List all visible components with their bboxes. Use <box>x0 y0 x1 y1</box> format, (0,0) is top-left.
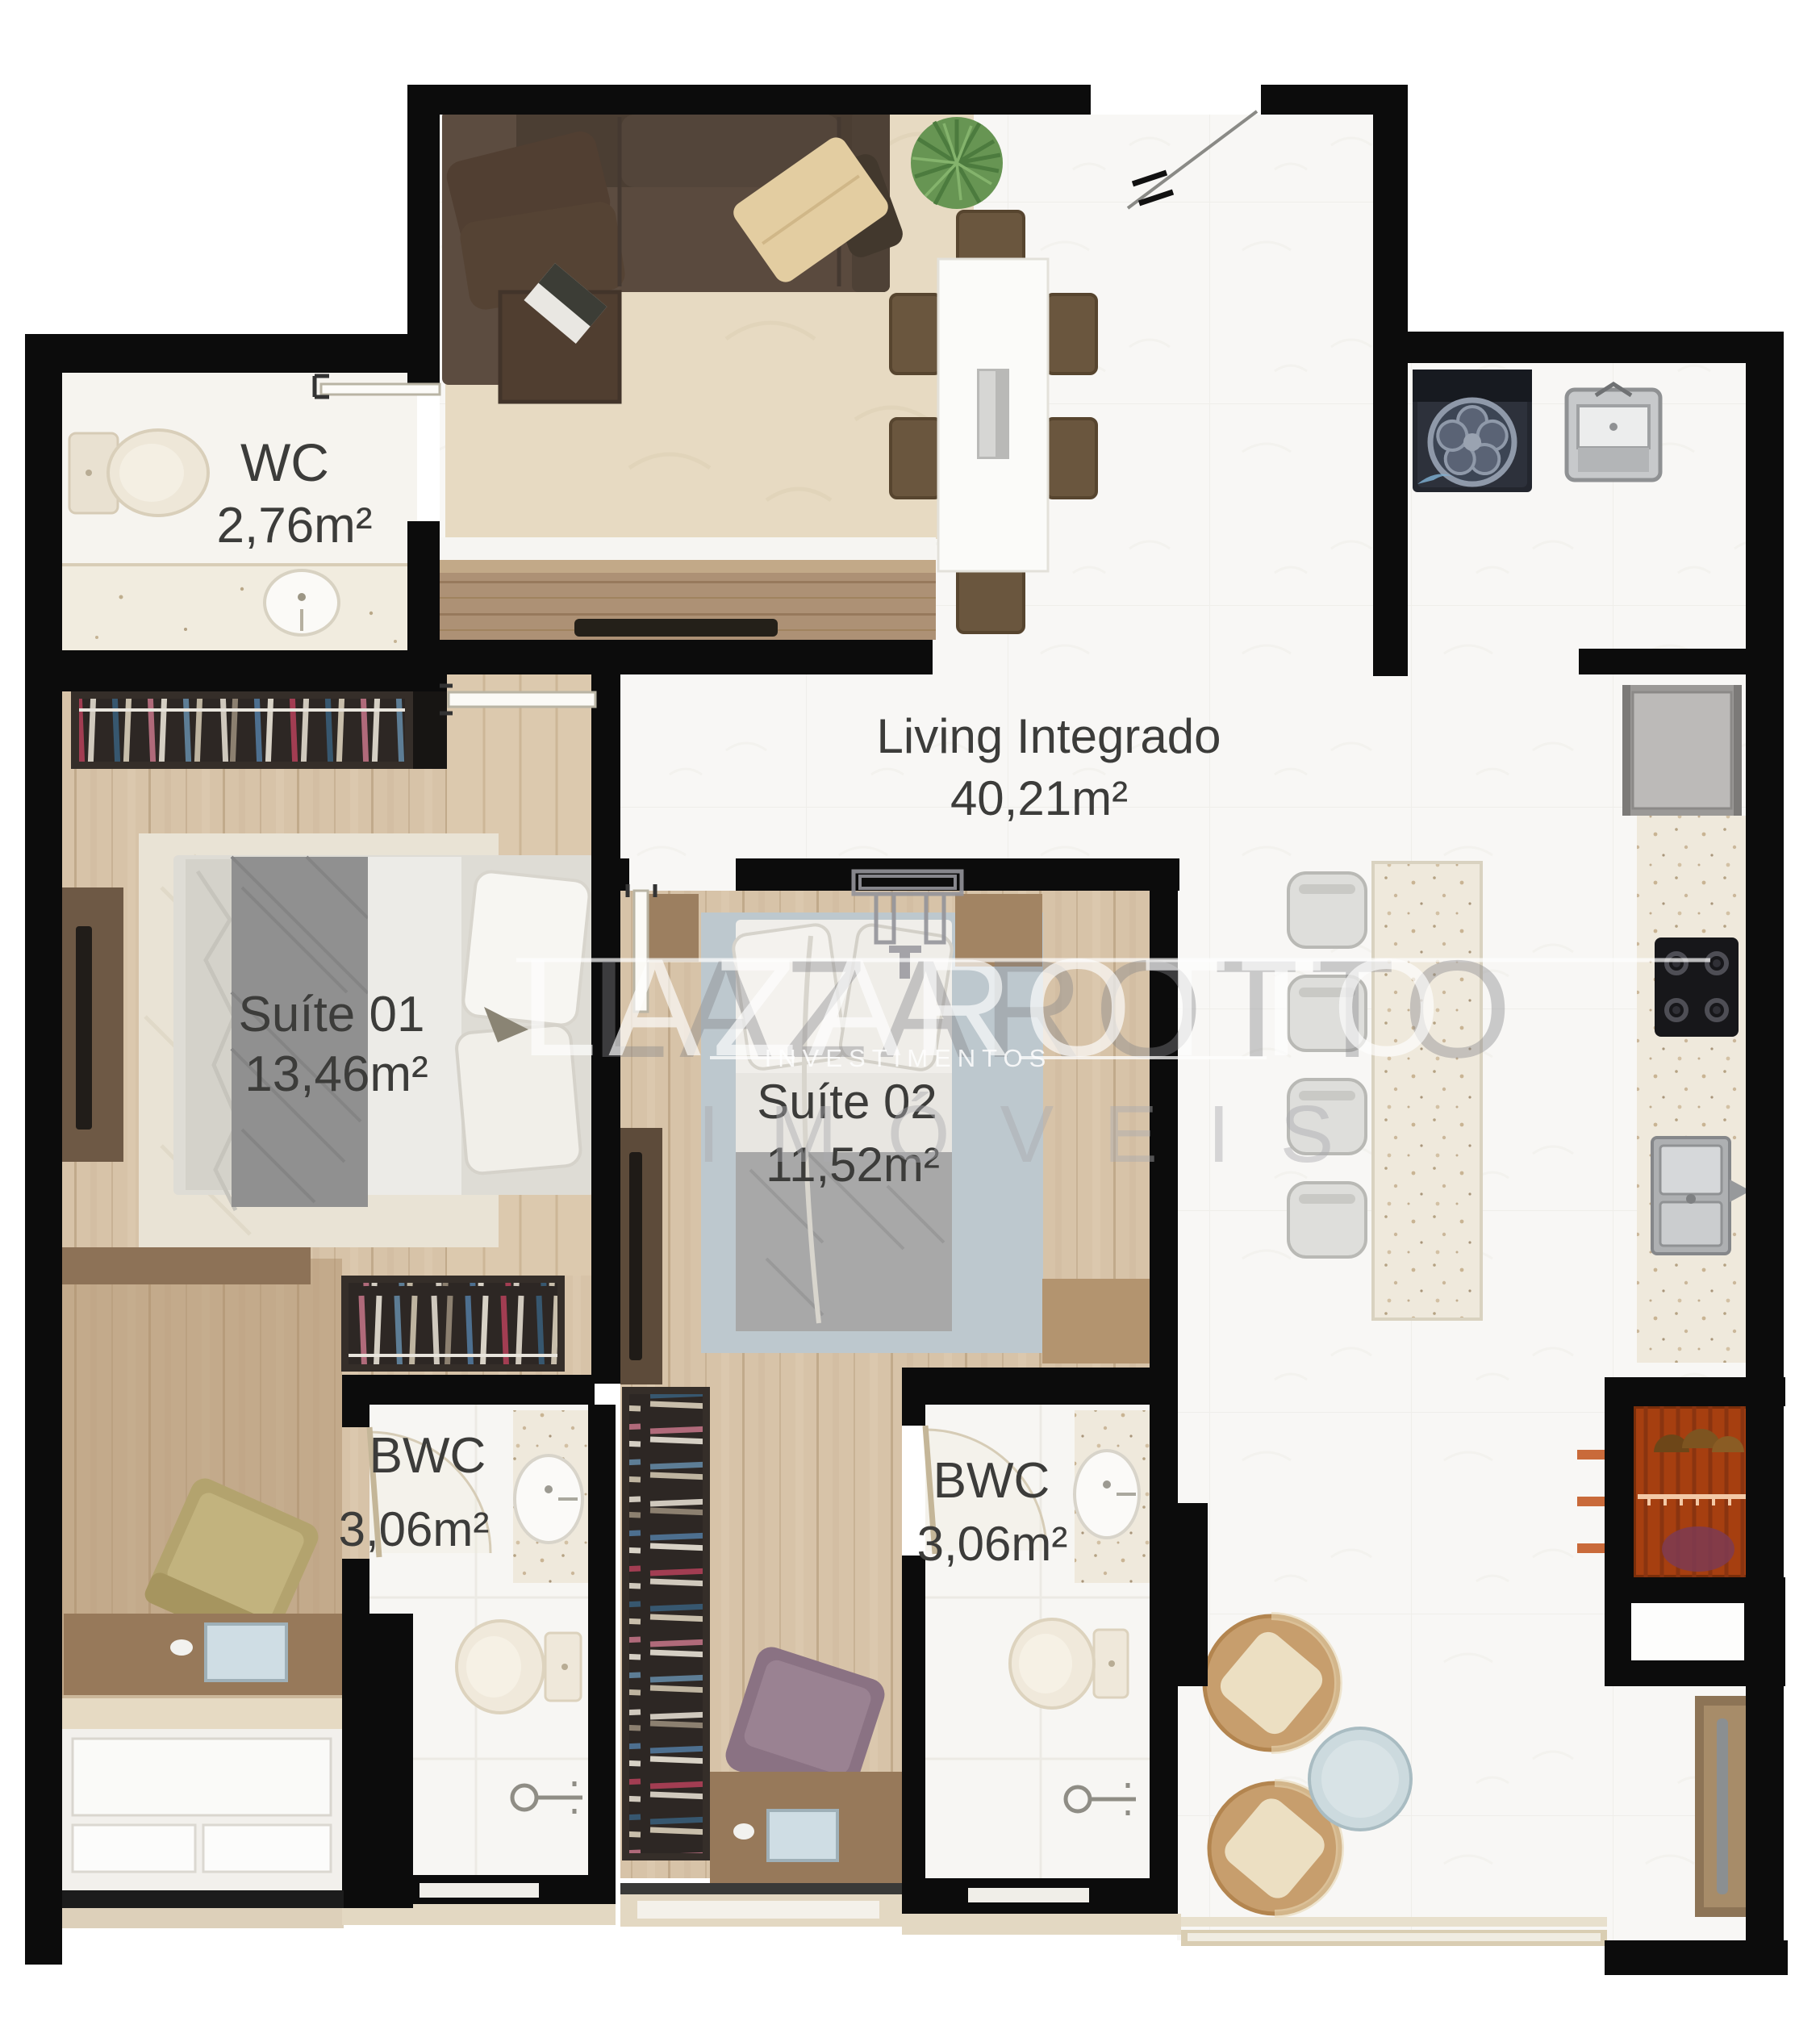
svg-text:3,06m²: 3,06m² <box>339 1502 490 1556</box>
svg-text:Living Integrado: Living Integrado <box>877 709 1221 763</box>
svg-text:INVESTIMENTOS: INVESTIMENTOS <box>765 1044 1053 1072</box>
svg-text:13,46m²: 13,46m² <box>244 1046 428 1102</box>
svg-text:3,06m²: 3,06m² <box>917 1517 1068 1571</box>
svg-text:IMÓVEIS: IMÓVEIS <box>698 1089 1384 1180</box>
svg-text:Suíte 01: Suíte 01 <box>239 987 425 1042</box>
svg-text:2,76m²: 2,76m² <box>217 498 373 553</box>
svg-text:BWC: BWC <box>933 1453 1050 1509</box>
svg-text:40,21m²: 40,21m² <box>950 771 1128 825</box>
svg-text:WC: WC <box>240 432 329 492</box>
svg-text:BWC: BWC <box>369 1428 486 1484</box>
